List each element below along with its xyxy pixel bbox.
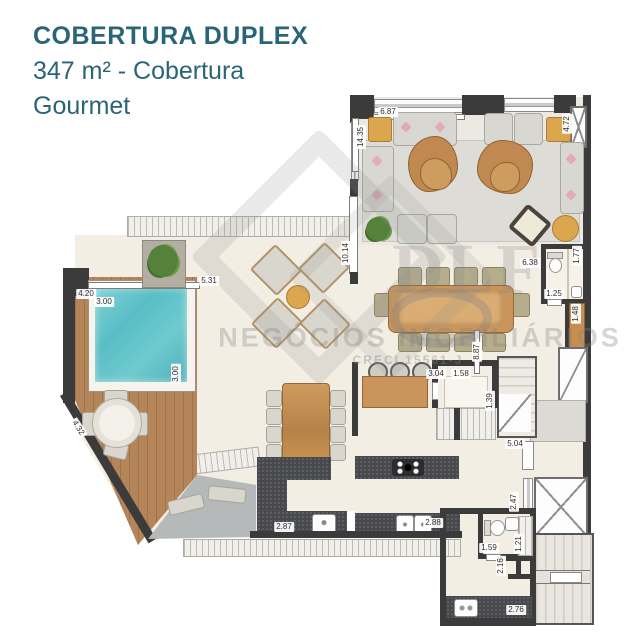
dimension-label: 14.35 (356, 125, 366, 149)
dimension-label: 3.04 (426, 369, 446, 379)
dimension-label: 10.14 (341, 241, 351, 265)
page-title: COBERTURA DUPLEX (33, 22, 308, 51)
dimension-label: 1.21 (514, 534, 524, 554)
page-subtitle: 347 m² - Cobertura (33, 57, 308, 86)
dimension-label: 2.76 (506, 605, 526, 615)
dimension-label: 2.88 (423, 518, 443, 528)
dimension-label: 2.16 (496, 556, 506, 576)
floor-plan-page: COBERTURA DUPLEX 347 m² - Cobertura Gour… (0, 0, 635, 641)
dimension-label: 4.72 (562, 114, 572, 134)
dimension-label: 4.20 (76, 289, 96, 299)
dimension-label: 3.00 (94, 297, 114, 307)
dimension-label: 1.59 (479, 543, 499, 553)
dimension-label: 6.87 (378, 107, 398, 117)
dimension-label: 8.87 (472, 342, 482, 362)
dimension-label: 1.39 (485, 391, 495, 411)
dimension-label: 3.00 (171, 364, 181, 384)
dimension-label: 2.47 (509, 492, 519, 512)
header: COBERTURA DUPLEX 347 m² - Cobertura Gour… (33, 22, 308, 121)
dimension-label: 5.31 (199, 276, 219, 286)
dimension-label: 6.38 (520, 258, 540, 268)
dimension-label: 1.77 (572, 246, 582, 266)
page-subtitle-2: Gourmet (33, 92, 308, 121)
dimension-label: 2.87 (274, 522, 294, 532)
dimension-label: 5.04 (505, 439, 525, 449)
dimension-label: 4.32 (68, 417, 87, 439)
dimension-label: 1.58 (451, 369, 471, 379)
dimension-label: 1.25 (544, 289, 564, 299)
dimension-label: 1.48 (571, 304, 581, 324)
